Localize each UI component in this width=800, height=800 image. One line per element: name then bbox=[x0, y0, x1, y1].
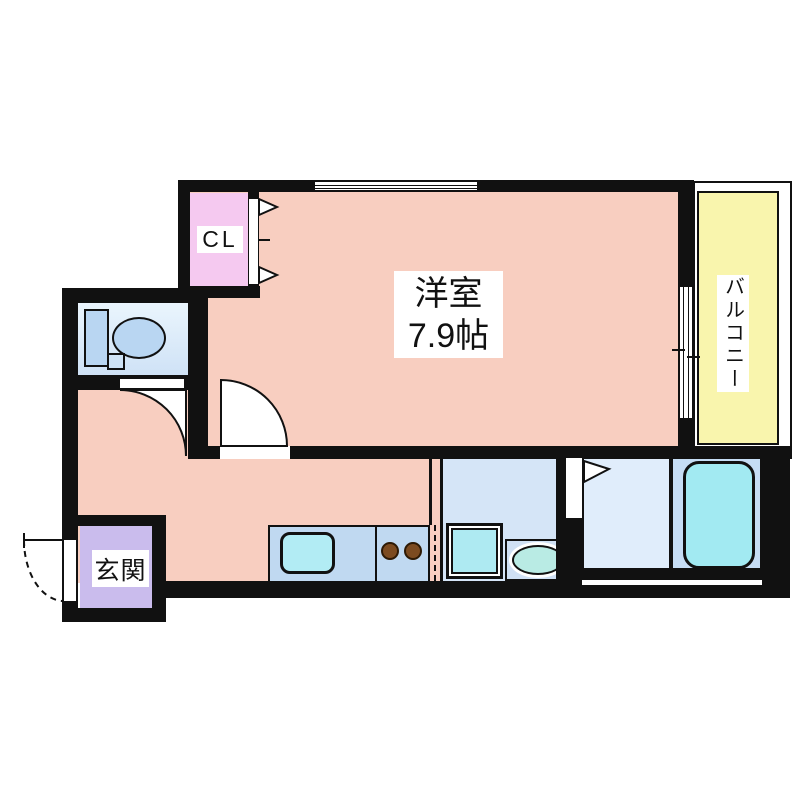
wall bbox=[178, 180, 190, 298]
washroom-partition-line bbox=[440, 458, 443, 581]
balcony-label-text: バルコニー bbox=[719, 276, 748, 391]
kitchen-sink-icon bbox=[280, 532, 335, 574]
wall bbox=[62, 515, 160, 526]
toilet-icon bbox=[84, 309, 109, 367]
floorplan: CL 洋室 7.9帖 バルコニー 玄関 bbox=[0, 0, 800, 800]
wall bbox=[188, 288, 208, 459]
stove-burner-icon bbox=[381, 542, 399, 560]
room-boundary-dashed-line bbox=[434, 525, 436, 581]
toilet-flush-icon bbox=[107, 353, 125, 370]
wall bbox=[762, 446, 790, 598]
stove-burner-icon bbox=[404, 542, 422, 560]
kitchen-partition-line bbox=[429, 458, 432, 525]
bath-wall-edge-line bbox=[582, 580, 762, 585]
closet-label-text: CL bbox=[202, 226, 237, 253]
washing-machine-icon bbox=[446, 523, 503, 579]
main-room-name: 洋室 bbox=[415, 273, 483, 315]
wall bbox=[248, 285, 259, 298]
entrance-door-leaf bbox=[62, 538, 78, 603]
main-room-size: 7.9帖 bbox=[408, 315, 489, 357]
closet-folding-door bbox=[248, 198, 259, 285]
entrance-label: 玄関 bbox=[92, 550, 149, 587]
wall bbox=[62, 288, 78, 540]
wall bbox=[62, 288, 208, 303]
washing-machine-drum bbox=[451, 528, 498, 574]
main-room-label: 洋室 7.9帖 bbox=[394, 271, 503, 358]
bathroom-floor bbox=[582, 455, 671, 570]
closet-label: CL bbox=[197, 226, 243, 253]
balcony-label: バルコニー bbox=[717, 275, 749, 392]
entrance-door-swing-arc-dashed bbox=[24, 540, 63, 601]
wall bbox=[152, 581, 582, 598]
wall bbox=[62, 608, 166, 622]
bathtub-icon bbox=[683, 461, 755, 569]
counter-divider bbox=[375, 527, 377, 581]
entrance-label-text: 玄関 bbox=[94, 551, 146, 587]
main-room-door-gap bbox=[220, 446, 290, 459]
window-balcony-sliding bbox=[678, 287, 694, 418]
bathroom-door-gap bbox=[566, 458, 582, 518]
window-top bbox=[315, 180, 477, 192]
toilet-door-leaf bbox=[118, 377, 186, 390]
